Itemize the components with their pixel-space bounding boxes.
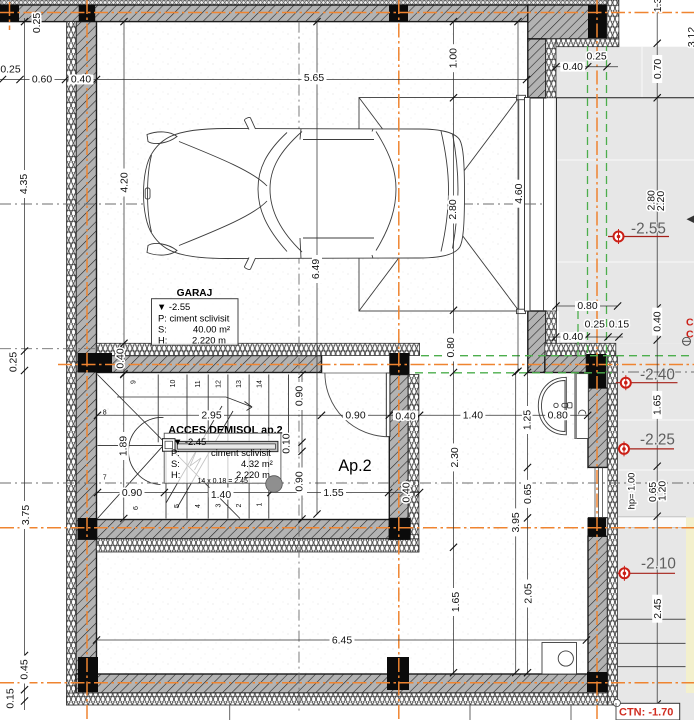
svg-text:2.95: 2.95 xyxy=(201,410,221,421)
svg-text:Ap.2: Ap.2 xyxy=(338,457,371,475)
svg-text:2.30: 2.30 xyxy=(450,447,461,467)
svg-text:0.90: 0.90 xyxy=(295,471,306,491)
svg-text:1.40: 1.40 xyxy=(463,411,483,422)
svg-text:-2.25: -2.25 xyxy=(640,432,675,449)
svg-text:0.90: 0.90 xyxy=(122,488,142,499)
svg-text:2.45: 2.45 xyxy=(653,598,664,618)
svg-text:40.00 m²: 40.00 m² xyxy=(193,324,230,335)
svg-text:5: 5 xyxy=(174,504,181,508)
svg-text:14 x 0.18 = 2.45: 14 x 0.18 = 2.45 xyxy=(198,478,249,485)
svg-text:0.40: 0.40 xyxy=(71,75,91,86)
svg-text:1.20: 1.20 xyxy=(658,481,669,501)
svg-text:0.40: 0.40 xyxy=(115,348,126,368)
svg-text:0.80: 0.80 xyxy=(548,410,568,421)
svg-text:1.55: 1.55 xyxy=(323,488,343,499)
svg-text:-2.40: -2.40 xyxy=(640,367,675,384)
svg-text:14: 14 xyxy=(257,380,264,388)
svg-text:0.45: 0.45 xyxy=(20,659,31,679)
svg-text:3.75: 3.75 xyxy=(21,505,32,525)
svg-text:H:: H: xyxy=(171,469,180,480)
svg-text:3.95: 3.95 xyxy=(511,512,522,532)
svg-text:0.40: 0.40 xyxy=(563,332,583,343)
svg-text:1.40: 1.40 xyxy=(211,490,231,501)
svg-text:0.90: 0.90 xyxy=(295,386,306,406)
svg-text:6.49: 6.49 xyxy=(311,259,322,279)
svg-text:0.90: 0.90 xyxy=(345,411,365,422)
svg-text:▼ -2.55: ▼ -2.55 xyxy=(157,301,190,312)
svg-text:C: C xyxy=(686,317,694,329)
svg-text:0.10: 0.10 xyxy=(282,433,293,453)
svg-text:6.45: 6.45 xyxy=(332,635,352,646)
svg-text:0.25: 0.25 xyxy=(0,65,20,76)
svg-text:3: 3 xyxy=(216,503,223,507)
svg-text:0.15: 0.15 xyxy=(6,688,17,708)
svg-text:1.00: 1.00 xyxy=(448,48,459,68)
svg-text:0.40: 0.40 xyxy=(402,482,413,502)
svg-text:GARAJ: GARAJ xyxy=(177,288,213,299)
svg-text:13: 13 xyxy=(236,380,243,388)
svg-text:6: 6 xyxy=(133,506,140,510)
svg-text:4.60: 4.60 xyxy=(514,183,525,203)
svg-text:4.35: 4.35 xyxy=(19,174,30,194)
svg-text:2: 2 xyxy=(236,503,243,507)
svg-text:0.40: 0.40 xyxy=(563,62,583,73)
svg-text:1.3: 1.3 xyxy=(653,0,664,12)
svg-text:2.20: 2.20 xyxy=(656,191,667,211)
svg-text:5.65: 5.65 xyxy=(304,73,324,84)
svg-text:7: 7 xyxy=(103,475,107,482)
svg-text:-2.10: -2.10 xyxy=(641,556,676,573)
svg-text:▼ -2.45: ▼ -2.45 xyxy=(173,436,206,447)
svg-text:2.220 m: 2.220 m xyxy=(192,335,226,346)
svg-text:1.89: 1.89 xyxy=(118,436,129,456)
svg-text:S:: S: xyxy=(158,324,167,335)
svg-text:2.80: 2.80 xyxy=(448,199,459,219)
svg-text:4.32 m²: 4.32 m² xyxy=(241,458,273,469)
svg-text:4.20: 4.20 xyxy=(120,172,131,192)
svg-text:2.05: 2.05 xyxy=(524,583,535,603)
svg-text:-2.55: -2.55 xyxy=(631,221,666,238)
svg-text:0.65: 0.65 xyxy=(523,484,534,504)
svg-text:1.65: 1.65 xyxy=(451,592,462,612)
svg-text:1: 1 xyxy=(257,502,264,506)
svg-text:0.25: 0.25 xyxy=(586,52,606,63)
svg-text:0.25: 0.25 xyxy=(585,319,605,330)
svg-text:CTN: -1.70: CTN: -1.70 xyxy=(619,707,673,719)
svg-text:hp= 1.00: hp= 1.00 xyxy=(626,473,637,510)
svg-text:0.80: 0.80 xyxy=(446,337,457,357)
svg-text:0.25: 0.25 xyxy=(32,13,43,33)
svg-text:4: 4 xyxy=(195,504,202,508)
svg-text:3.12: 3.12 xyxy=(687,27,694,47)
svg-text:1.65: 1.65 xyxy=(652,395,663,415)
svg-text:S:: S: xyxy=(171,458,180,469)
svg-text:1.25: 1.25 xyxy=(523,410,534,430)
svg-text:ciment sclivisit: ciment sclivisit xyxy=(211,447,271,458)
svg-text:10: 10 xyxy=(170,380,177,388)
svg-text:11: 11 xyxy=(195,380,202,387)
svg-text:9: 9 xyxy=(131,380,138,384)
svg-text:0.70: 0.70 xyxy=(653,59,664,79)
svg-text:P: ciment sclivisit: P: ciment sclivisit xyxy=(158,313,230,324)
svg-text:H:: H: xyxy=(158,335,167,346)
svg-text:0.15: 0.15 xyxy=(609,319,629,330)
svg-text:0.40: 0.40 xyxy=(395,412,415,423)
svg-text:0.60: 0.60 xyxy=(32,75,52,86)
svg-text:12: 12 xyxy=(216,380,223,388)
svg-text:0.80: 0.80 xyxy=(577,301,597,312)
svg-text:0.40: 0.40 xyxy=(652,311,663,331)
svg-text:0.25: 0.25 xyxy=(9,352,20,372)
svg-text:P:: P: xyxy=(171,447,180,458)
